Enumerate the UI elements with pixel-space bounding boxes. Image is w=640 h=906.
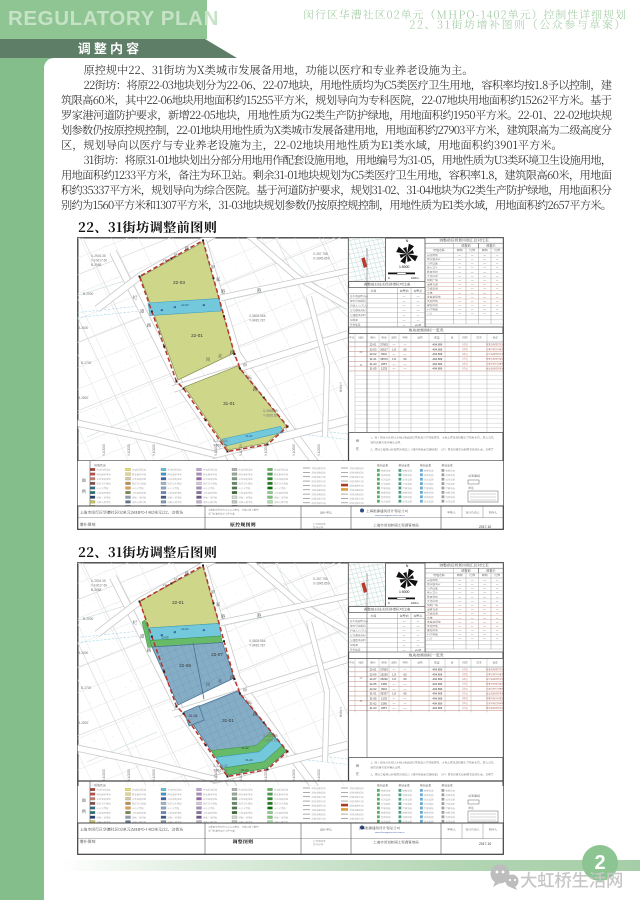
svg-text:Y-10000: Y-10000 bbox=[239, 444, 243, 456]
svg-text:22-02: 22-02 bbox=[181, 627, 189, 631]
svg-text:—: — bbox=[495, 283, 498, 286]
svg-text:31-01: 31-01 bbox=[369, 357, 376, 361]
svg-text:—: — bbox=[470, 258, 473, 261]
svg-text:-494.699: -494.699 bbox=[431, 706, 442, 710]
svg-text:B-2600: B-2600 bbox=[78, 651, 89, 655]
svg-text:—: — bbox=[470, 600, 473, 603]
svg-text:1233: 1233 bbox=[381, 367, 387, 371]
svg-text:22-03: 22-03 bbox=[369, 347, 376, 351]
svg-text:—: — bbox=[416, 295, 419, 298]
svg-text:—: — bbox=[402, 624, 405, 627]
svg-text:22-02: 22-02 bbox=[369, 686, 376, 690]
svg-text:—: — bbox=[392, 363, 395, 366]
svg-text:www.shsongyuan-arch.com.cn: www.shsongyuan-arch.com.cn bbox=[375, 514, 405, 517]
svg-text:—: — bbox=[495, 292, 498, 295]
svg-text:—: — bbox=[402, 324, 405, 327]
svg-text:—: — bbox=[458, 633, 461, 636]
svg-text:—: — bbox=[470, 271, 473, 274]
svg-text:X-2853.65: X-2853.65 bbox=[263, 409, 278, 413]
svg-text:—: — bbox=[403, 363, 406, 366]
svg-text:-494.699: -494.699 bbox=[431, 701, 442, 705]
svg-text:—: — bbox=[495, 591, 498, 594]
svg-text:—: — bbox=[495, 296, 498, 299]
svg-text:—: — bbox=[483, 604, 486, 607]
svg-text:—: — bbox=[402, 305, 405, 308]
svg-text:—: — bbox=[483, 620, 486, 623]
svg-text:—: — bbox=[403, 683, 406, 686]
svg-text:—: — bbox=[402, 648, 405, 651]
svg-text:—: — bbox=[458, 263, 461, 266]
svg-text:—: — bbox=[403, 687, 406, 690]
svg-text:—: — bbox=[483, 271, 486, 274]
svg-text:—: — bbox=[416, 309, 419, 312]
svg-text:—: — bbox=[495, 263, 498, 266]
svg-text:—: — bbox=[403, 707, 406, 710]
svg-text:Y-10617.60: Y-10617.60 bbox=[91, 259, 107, 263]
svg-text:X-5803.566: X-5803.566 bbox=[249, 314, 266, 318]
svg-text:—: — bbox=[483, 595, 486, 598]
svg-text:—: — bbox=[495, 637, 498, 640]
svg-text:—: — bbox=[458, 267, 461, 270]
svg-text:—: — bbox=[483, 308, 486, 311]
svg-text:30517: 30517 bbox=[380, 347, 388, 351]
svg-text:—: — bbox=[470, 595, 473, 598]
svg-text:—: — bbox=[495, 304, 498, 307]
svg-text:—: — bbox=[402, 295, 405, 298]
svg-text:-494.699: -494.699 bbox=[431, 343, 442, 347]
svg-text:—: — bbox=[495, 595, 498, 598]
svg-text:—: — bbox=[470, 263, 473, 266]
svg-text:B-2988: B-2988 bbox=[91, 263, 102, 267]
svg-text:—: — bbox=[483, 625, 486, 628]
svg-text:X-3355.56: X-3355.56 bbox=[213, 439, 228, 443]
svg-text:www.shsongyuan-arch.com.cn: www.shsongyuan-arch.com.cn bbox=[375, 830, 405, 833]
svg-text:—: — bbox=[392, 707, 395, 710]
svg-text:22-01: 22-01 bbox=[369, 343, 376, 347]
svg-text:1950: 1950 bbox=[381, 682, 387, 686]
svg-text:1.8: 1.8 bbox=[392, 347, 396, 351]
svg-text:—: — bbox=[458, 308, 461, 311]
svg-text:-494.699: -494.699 bbox=[431, 357, 442, 361]
svg-text:-494.699: -494.699 bbox=[431, 672, 442, 676]
svg-text:X-2845.859: X-2845.859 bbox=[313, 257, 330, 261]
svg-text:B-2800: B-2800 bbox=[78, 396, 89, 400]
svg-text:B-2500: B-2500 bbox=[83, 292, 94, 296]
svg-text:—: — bbox=[495, 633, 498, 636]
svg-text:-494.699: -494.699 bbox=[431, 682, 442, 686]
svg-text:—: — bbox=[470, 604, 473, 607]
svg-text:—: — bbox=[495, 600, 498, 603]
svg-text:—: — bbox=[458, 304, 461, 307]
svg-text:60: 60 bbox=[403, 357, 406, 361]
svg-text:—: — bbox=[458, 279, 461, 282]
svg-text:—: — bbox=[495, 604, 498, 607]
svg-text:—: — bbox=[458, 258, 461, 261]
svg-text:—: — bbox=[458, 254, 461, 257]
svg-text:31-05: 31-05 bbox=[369, 367, 376, 371]
svg-text:X-2904.35: X-2904.35 bbox=[91, 579, 106, 583]
svg-text:—: — bbox=[458, 579, 461, 582]
svg-text:—: — bbox=[470, 292, 473, 295]
svg-text:—: — bbox=[483, 279, 486, 282]
svg-text:22-06: 22-06 bbox=[179, 663, 191, 668]
svg-text:—: — bbox=[458, 300, 461, 303]
svg-text:-494.699: -494.699 bbox=[431, 347, 442, 351]
svg-text:31-05: 31-05 bbox=[369, 696, 376, 700]
svg-text:-494.699: -494.699 bbox=[431, 362, 442, 366]
svg-text:—: — bbox=[470, 591, 473, 594]
svg-text:—: — bbox=[483, 616, 486, 619]
svg-text:—: — bbox=[470, 625, 473, 628]
svg-text:—: — bbox=[416, 314, 419, 317]
svg-text:36570: 36570 bbox=[380, 357, 388, 361]
svg-text:—: — bbox=[458, 275, 461, 278]
svg-text:22-05: 22-05 bbox=[161, 635, 169, 639]
svg-text:1:5000: 1:5000 bbox=[399, 265, 409, 269]
svg-text:22-02: 22-02 bbox=[181, 303, 189, 307]
svg-text:22-01: 22-01 bbox=[191, 333, 203, 338]
svg-text:Y-10000: Y-10000 bbox=[152, 769, 156, 781]
svg-text:—: — bbox=[458, 288, 461, 291]
svg-text:35337: 35337 bbox=[380, 691, 388, 695]
svg-text:+1.37: +1.37 bbox=[414, 323, 421, 327]
svg-text:15255: 15255 bbox=[380, 672, 388, 676]
svg-text:—: — bbox=[483, 637, 486, 640]
svg-text:—: — bbox=[470, 267, 473, 270]
svg-text:Y-3306.62: Y-3306.62 bbox=[263, 738, 278, 742]
svg-text:—: — bbox=[470, 579, 473, 582]
svg-text:—: — bbox=[458, 604, 461, 607]
svg-text:60: 60 bbox=[403, 347, 406, 351]
svg-text:—: — bbox=[392, 697, 395, 700]
svg-text:—: — bbox=[495, 288, 498, 291]
svg-text:—: — bbox=[416, 624, 419, 627]
svg-text:—: — bbox=[483, 587, 486, 590]
svg-text:31-02: 31-02 bbox=[369, 701, 376, 705]
svg-text:—: — bbox=[458, 587, 461, 590]
svg-text:Y-3306.62: Y-3306.62 bbox=[263, 414, 278, 418]
svg-text:2017.10: 2017.10 bbox=[479, 525, 491, 529]
svg-text:—: — bbox=[402, 629, 405, 632]
svg-text:—: — bbox=[483, 612, 486, 615]
svg-text:-494.699: -494.699 bbox=[431, 352, 442, 356]
svg-text:—: — bbox=[495, 579, 498, 582]
svg-text:22-07: 22-07 bbox=[211, 652, 223, 657]
svg-text:—: — bbox=[458, 583, 461, 586]
svg-text:—: — bbox=[402, 319, 405, 322]
svg-text:Y-10000: Y-10000 bbox=[102, 444, 106, 456]
svg-text:—: — bbox=[483, 258, 486, 261]
svg-text:—: — bbox=[495, 271, 498, 274]
svg-text:31-03: 31-03 bbox=[369, 362, 376, 366]
svg-text:Y-10000: Y-10000 bbox=[264, 769, 268, 781]
svg-text:27903: 27903 bbox=[380, 343, 388, 347]
svg-text:31-01: 31-01 bbox=[222, 718, 234, 723]
svg-text:—: — bbox=[392, 368, 395, 371]
svg-text:—: — bbox=[458, 591, 461, 594]
svg-text:—: — bbox=[495, 620, 498, 623]
svg-text:—: — bbox=[458, 608, 461, 611]
svg-text:—: — bbox=[495, 583, 498, 586]
svg-text:—: — bbox=[483, 591, 486, 594]
svg-text:1560: 1560 bbox=[381, 701, 387, 705]
svg-text:2657: 2657 bbox=[381, 362, 387, 366]
svg-text:X-5803.566: X-5803.566 bbox=[249, 639, 266, 643]
svg-text:+1.37: +1.37 bbox=[414, 647, 421, 651]
svg-text:3901: 3901 bbox=[381, 352, 387, 356]
svg-text:—: — bbox=[403, 702, 406, 705]
svg-text:—: — bbox=[495, 308, 498, 311]
svg-text:1233: 1233 bbox=[381, 696, 387, 700]
svg-text:—: — bbox=[495, 625, 498, 628]
svg-text:31-03: 31-03 bbox=[369, 706, 376, 710]
svg-text:—: — bbox=[458, 292, 461, 295]
svg-text:2017.10: 2017.10 bbox=[479, 841, 491, 845]
svg-text:Y-3485.787: Y-3485.787 bbox=[249, 319, 265, 323]
svg-text:1.8: 1.8 bbox=[392, 357, 396, 361]
svg-text:—: — bbox=[416, 305, 419, 308]
svg-text:Y-10000: Y-10000 bbox=[317, 444, 321, 456]
svg-text:31-01: 31-01 bbox=[369, 691, 376, 695]
svg-text:Y-10000: Y-10000 bbox=[214, 444, 218, 456]
svg-text:—: — bbox=[483, 608, 486, 611]
svg-text:—: — bbox=[495, 313, 498, 316]
svg-text:—: — bbox=[458, 616, 461, 619]
svg-text:—: — bbox=[495, 612, 498, 615]
svg-text:1.8: 1.8 bbox=[392, 691, 396, 695]
svg-text:Y-10000: Y-10000 bbox=[214, 769, 218, 781]
svg-text:—: — bbox=[402, 620, 405, 623]
svg-text:—: — bbox=[470, 313, 473, 316]
svg-text:—: — bbox=[403, 344, 406, 347]
svg-text:—: — bbox=[458, 595, 461, 598]
svg-text:—: — bbox=[403, 697, 406, 700]
svg-text:—: — bbox=[458, 612, 461, 615]
svg-text:X-3355.56: X-3355.56 bbox=[213, 764, 228, 768]
svg-text:Y-10000: Y-10000 bbox=[264, 444, 268, 456]
svg-text:27903: 27903 bbox=[380, 667, 388, 671]
svg-text:—: — bbox=[403, 668, 406, 671]
svg-text:—: — bbox=[402, 634, 405, 637]
svg-text:—: — bbox=[470, 583, 473, 586]
svg-text:—: — bbox=[470, 587, 473, 590]
svg-text:X-2904.35: X-2904.35 bbox=[91, 254, 106, 258]
svg-text:—: — bbox=[495, 275, 498, 278]
svg-text:Y-10000: Y-10000 bbox=[292, 444, 296, 456]
svg-text:B-2800: B-2800 bbox=[78, 721, 89, 725]
svg-text:-494.699: -494.699 bbox=[431, 677, 442, 681]
svg-text:—: — bbox=[483, 267, 486, 270]
svg-text:—: — bbox=[458, 313, 461, 316]
svg-text:Y-10000: Y-10000 bbox=[152, 444, 156, 456]
svg-text:Y-3485.787: Y-3485.787 bbox=[249, 643, 265, 647]
svg-text:—: — bbox=[470, 308, 473, 311]
svg-text:22-02: 22-02 bbox=[369, 352, 376, 356]
svg-text:—: — bbox=[470, 616, 473, 619]
svg-text:—: — bbox=[402, 639, 405, 642]
svg-text:—: — bbox=[495, 267, 498, 270]
svg-text:—: — bbox=[483, 583, 486, 586]
svg-text:31-01: 31-01 bbox=[223, 401, 235, 406]
svg-text:—: — bbox=[416, 300, 419, 303]
svg-text:B-2988: B-2988 bbox=[91, 588, 102, 592]
svg-text:22-01: 22-01 bbox=[369, 667, 376, 671]
svg-text:—: — bbox=[470, 612, 473, 615]
svg-text:—: — bbox=[495, 279, 498, 282]
svg-text:31-02: 31-02 bbox=[241, 746, 249, 750]
svg-text:31-05: 31-05 bbox=[188, 714, 197, 718]
svg-text:—: — bbox=[470, 288, 473, 291]
svg-text:—: — bbox=[483, 254, 486, 257]
svg-text:—: — bbox=[483, 600, 486, 603]
svg-text:—: — bbox=[483, 292, 486, 295]
svg-text:100m: 100m bbox=[411, 276, 419, 280]
svg-text:60: 60 bbox=[403, 677, 406, 681]
svg-text:—: — bbox=[458, 296, 461, 299]
svg-text:X-2845.859: X-2845.859 bbox=[313, 581, 330, 585]
svg-text:22-06: 22-06 bbox=[369, 672, 376, 676]
svg-text:100m: 100m bbox=[411, 601, 419, 605]
svg-text:—: — bbox=[483, 633, 486, 636]
svg-text:—: — bbox=[470, 608, 473, 611]
svg-text:—: — bbox=[458, 625, 461, 628]
svg-text:B-2700: B-2700 bbox=[81, 686, 92, 690]
svg-text:Y-10617.60: Y-10617.60 bbox=[91, 583, 107, 587]
svg-text:—: — bbox=[470, 300, 473, 303]
svg-text:-494.699: -494.699 bbox=[431, 367, 442, 371]
svg-text:—: — bbox=[458, 620, 461, 623]
svg-text:Y-10000: Y-10000 bbox=[292, 769, 296, 781]
svg-text:—: — bbox=[495, 254, 498, 257]
svg-text:60: 60 bbox=[403, 691, 406, 695]
svg-text:—: — bbox=[392, 344, 395, 347]
svg-text:—: — bbox=[495, 616, 498, 619]
svg-text:—: — bbox=[495, 587, 498, 590]
svg-text:22-05: 22-05 bbox=[369, 682, 376, 686]
svg-text:—: — bbox=[416, 319, 419, 322]
svg-text:—: — bbox=[458, 283, 461, 286]
svg-text:-494.699: -494.699 bbox=[431, 696, 442, 700]
svg-text:—: — bbox=[402, 314, 405, 317]
svg-text:—: — bbox=[483, 300, 486, 303]
svg-text:—: — bbox=[495, 300, 498, 303]
svg-text:31-03: 31-03 bbox=[245, 434, 252, 438]
svg-text:—: — bbox=[402, 300, 405, 303]
svg-text:B-2600: B-2600 bbox=[78, 326, 89, 330]
svg-text:Y-10000: Y-10000 bbox=[317, 769, 321, 781]
svg-text:X-2853.65: X-2853.65 bbox=[263, 734, 278, 738]
svg-text:1:5000: 1:5000 bbox=[399, 590, 409, 594]
svg-text:2657: 2657 bbox=[381, 706, 387, 710]
svg-text:—: — bbox=[402, 309, 405, 312]
svg-text:1.8: 1.8 bbox=[392, 672, 396, 676]
svg-text:—: — bbox=[470, 620, 473, 623]
svg-text:B-2700: B-2700 bbox=[81, 361, 92, 365]
svg-text:X-257.756: X-257.756 bbox=[313, 252, 328, 256]
svg-text:—: — bbox=[483, 283, 486, 286]
svg-text:—: — bbox=[470, 296, 473, 299]
svg-text:—: — bbox=[470, 637, 473, 640]
svg-text:—: — bbox=[416, 634, 419, 637]
svg-text:—: — bbox=[470, 275, 473, 278]
svg-text:—: — bbox=[483, 288, 486, 291]
svg-text:—: — bbox=[483, 313, 486, 316]
svg-text:—: — bbox=[416, 643, 419, 646]
svg-text:—: — bbox=[392, 683, 395, 686]
svg-text:—: — bbox=[470, 304, 473, 307]
svg-text:B-2500: B-2500 bbox=[83, 617, 94, 621]
svg-text:—: — bbox=[470, 279, 473, 282]
svg-text:—: — bbox=[416, 620, 419, 623]
svg-text:3901: 3901 bbox=[381, 686, 387, 690]
svg-text:—: — bbox=[483, 304, 486, 307]
svg-text:—: — bbox=[483, 579, 486, 582]
svg-text:—: — bbox=[470, 629, 473, 632]
svg-text:—: — bbox=[402, 643, 405, 646]
svg-text:—: — bbox=[392, 687, 395, 690]
svg-text:—: — bbox=[483, 296, 486, 299]
svg-text:X-257.756: X-257.756 bbox=[313, 577, 328, 581]
svg-text:—: — bbox=[495, 608, 498, 611]
svg-text:—: — bbox=[416, 629, 419, 632]
svg-text:22-07: 22-07 bbox=[369, 677, 376, 681]
svg-text:—: — bbox=[458, 629, 461, 632]
svg-text:31-03: 31-03 bbox=[245, 758, 253, 762]
svg-text:Y-10000: Y-10000 bbox=[239, 769, 243, 781]
svg-text:Y-10000: Y-10000 bbox=[127, 769, 131, 781]
svg-text:-494.699: -494.699 bbox=[431, 667, 442, 671]
svg-text:—: — bbox=[458, 600, 461, 603]
svg-text:—: — bbox=[470, 254, 473, 257]
svg-text:-494.699: -494.699 bbox=[431, 691, 442, 695]
svg-text:Y-10000: Y-10000 bbox=[102, 769, 106, 781]
svg-text:1.8: 1.8 bbox=[392, 677, 396, 681]
svg-text:N: N bbox=[405, 239, 408, 243]
svg-text:—: — bbox=[392, 702, 395, 705]
svg-text:15262: 15262 bbox=[380, 677, 388, 681]
svg-text:—: — bbox=[483, 275, 486, 278]
svg-text:—: — bbox=[458, 271, 461, 274]
svg-text:—: — bbox=[470, 283, 473, 286]
svg-text:—: — bbox=[495, 629, 498, 632]
svg-text:Y-10000: Y-10000 bbox=[127, 444, 131, 456]
svg-text:-494.699: -494.699 bbox=[431, 686, 442, 690]
svg-text:22-03: 22-03 bbox=[173, 280, 185, 285]
svg-text:—: — bbox=[483, 263, 486, 266]
svg-text:N: N bbox=[405, 564, 408, 568]
svg-text:—: — bbox=[470, 633, 473, 636]
svg-text:—: — bbox=[403, 368, 406, 371]
svg-text:—: — bbox=[458, 637, 461, 640]
svg-text:—: — bbox=[495, 258, 498, 261]
svg-text:—: — bbox=[392, 353, 395, 356]
svg-text:60: 60 bbox=[403, 672, 406, 676]
svg-text:—: — bbox=[403, 353, 406, 356]
svg-text:—: — bbox=[483, 629, 486, 632]
svg-text:—: — bbox=[416, 639, 419, 642]
svg-text:—: — bbox=[392, 668, 395, 671]
svg-text:22-01: 22-01 bbox=[172, 600, 184, 605]
